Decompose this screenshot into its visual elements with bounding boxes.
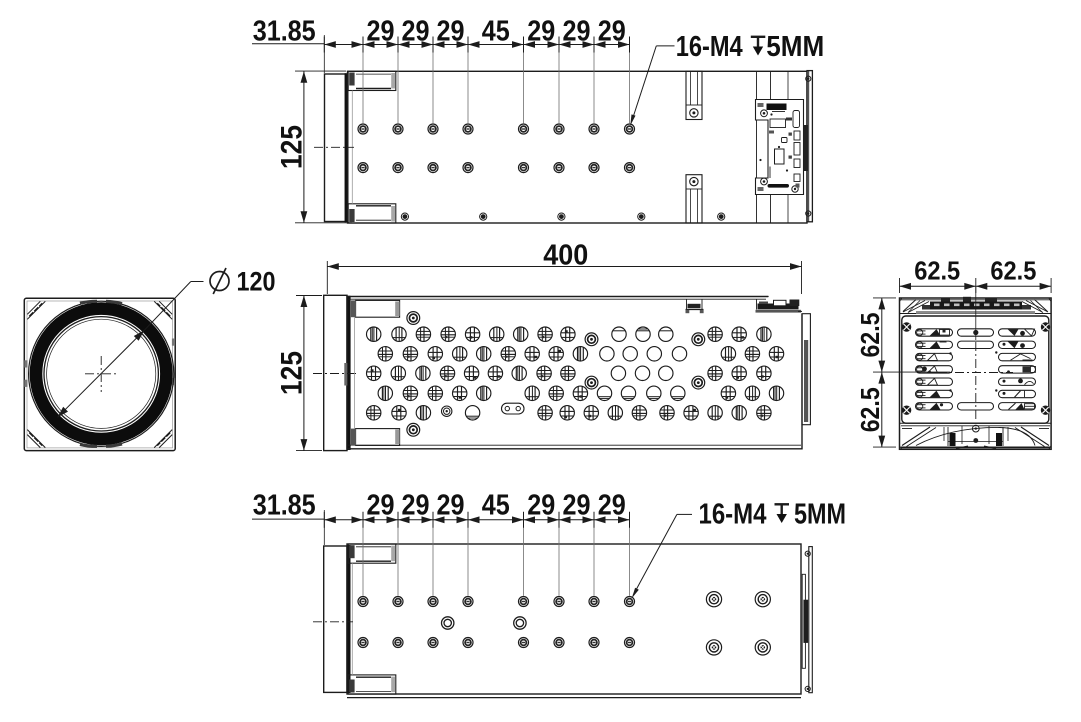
svg-text:5MM: 5MM — [766, 31, 824, 63]
svg-text:62.5: 62.5 — [855, 387, 885, 432]
svg-text:29: 29 — [563, 490, 591, 522]
svg-text:45: 45 — [482, 490, 510, 522]
svg-text:29: 29 — [563, 16, 591, 48]
svg-text:29: 29 — [367, 16, 395, 48]
svg-text:400: 400 — [543, 240, 588, 272]
svg-text:62.5: 62.5 — [914, 256, 960, 286]
svg-text:29: 29 — [367, 490, 395, 522]
svg-text:45: 45 — [482, 16, 510, 48]
svg-text:120: 120 — [237, 266, 276, 296]
svg-text:62.5: 62.5 — [990, 256, 1036, 286]
svg-text:31.85: 31.85 — [253, 16, 316, 48]
svg-text:5MM: 5MM — [794, 499, 846, 531]
svg-text:29: 29 — [402, 490, 430, 522]
svg-text:125: 125 — [276, 125, 309, 169]
svg-text:29: 29 — [598, 490, 626, 522]
svg-text:62.5: 62.5 — [855, 313, 885, 358]
svg-text:125: 125 — [276, 351, 309, 395]
svg-text:29: 29 — [402, 16, 430, 48]
svg-text:29: 29 — [437, 16, 465, 48]
svg-text:16-M4: 16-M4 — [699, 499, 767, 531]
svg-text:16-M4: 16-M4 — [676, 31, 743, 63]
svg-text:29: 29 — [437, 490, 465, 522]
svg-text:29: 29 — [527, 490, 555, 522]
svg-text:29: 29 — [598, 16, 626, 48]
svg-text:31.85: 31.85 — [253, 490, 316, 522]
svg-text:29: 29 — [527, 16, 555, 48]
